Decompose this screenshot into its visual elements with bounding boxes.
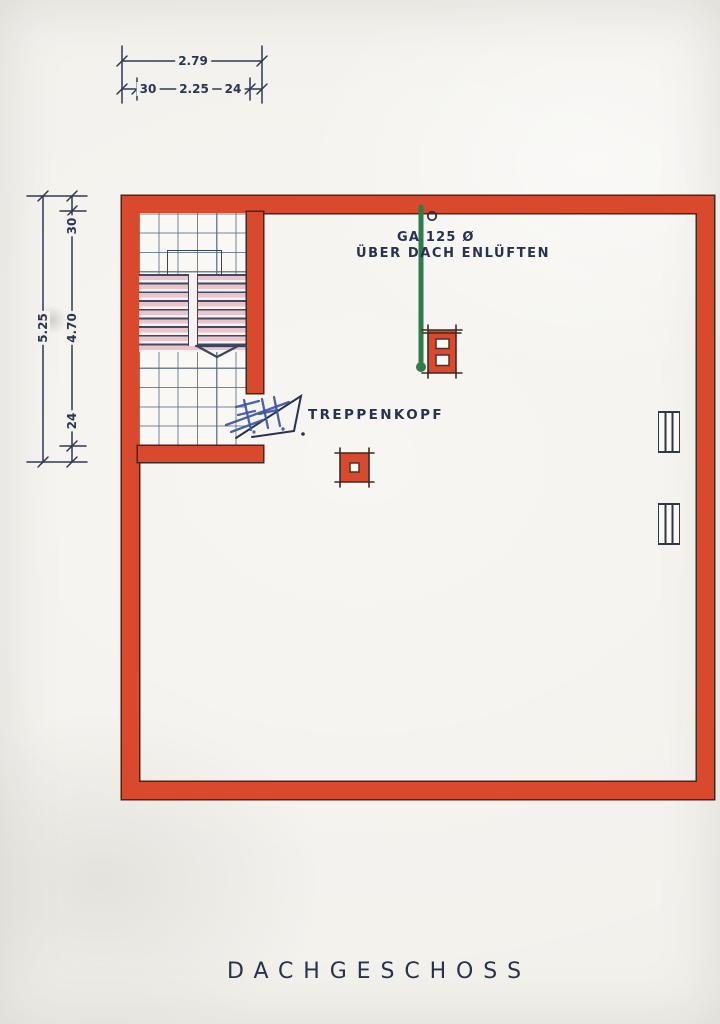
window-lower — [658, 503, 680, 545]
stair-label: TREPPENKOPF — [308, 407, 444, 423]
plan-sheet: 2.79 30 2.25 24 5.25 30 4.70 24 GA 125 Ø… — [0, 0, 720, 1024]
window-upper — [658, 411, 680, 453]
dim-left-total: 5.25 — [36, 311, 50, 345]
stair-center-divider — [188, 274, 198, 346]
dim-top-seg-left: 30 — [137, 82, 160, 96]
vent-label-line2: ÜBER DACH ENLÜFTEN — [356, 246, 550, 261]
dim-top-seg-mid: 2.25 — [176, 82, 212, 96]
dim-left-seg-bottom: 24 — [65, 411, 79, 432]
dim-top-seg-right: 24 — [222, 82, 245, 96]
stairwell-right-wall — [247, 212, 263, 393]
vent-label-line1: GA 125 Ø — [397, 230, 475, 245]
stairwell-bottom-wall — [138, 446, 263, 462]
floor-title: DACHGESCHOSS — [227, 959, 531, 984]
dim-left-seg-mid: 4.70 — [65, 311, 79, 345]
stair-opening-outline — [167, 250, 222, 276]
dim-left-seg-top: 30 — [65, 216, 79, 237]
dim-top-total: 2.79 — [175, 54, 211, 68]
